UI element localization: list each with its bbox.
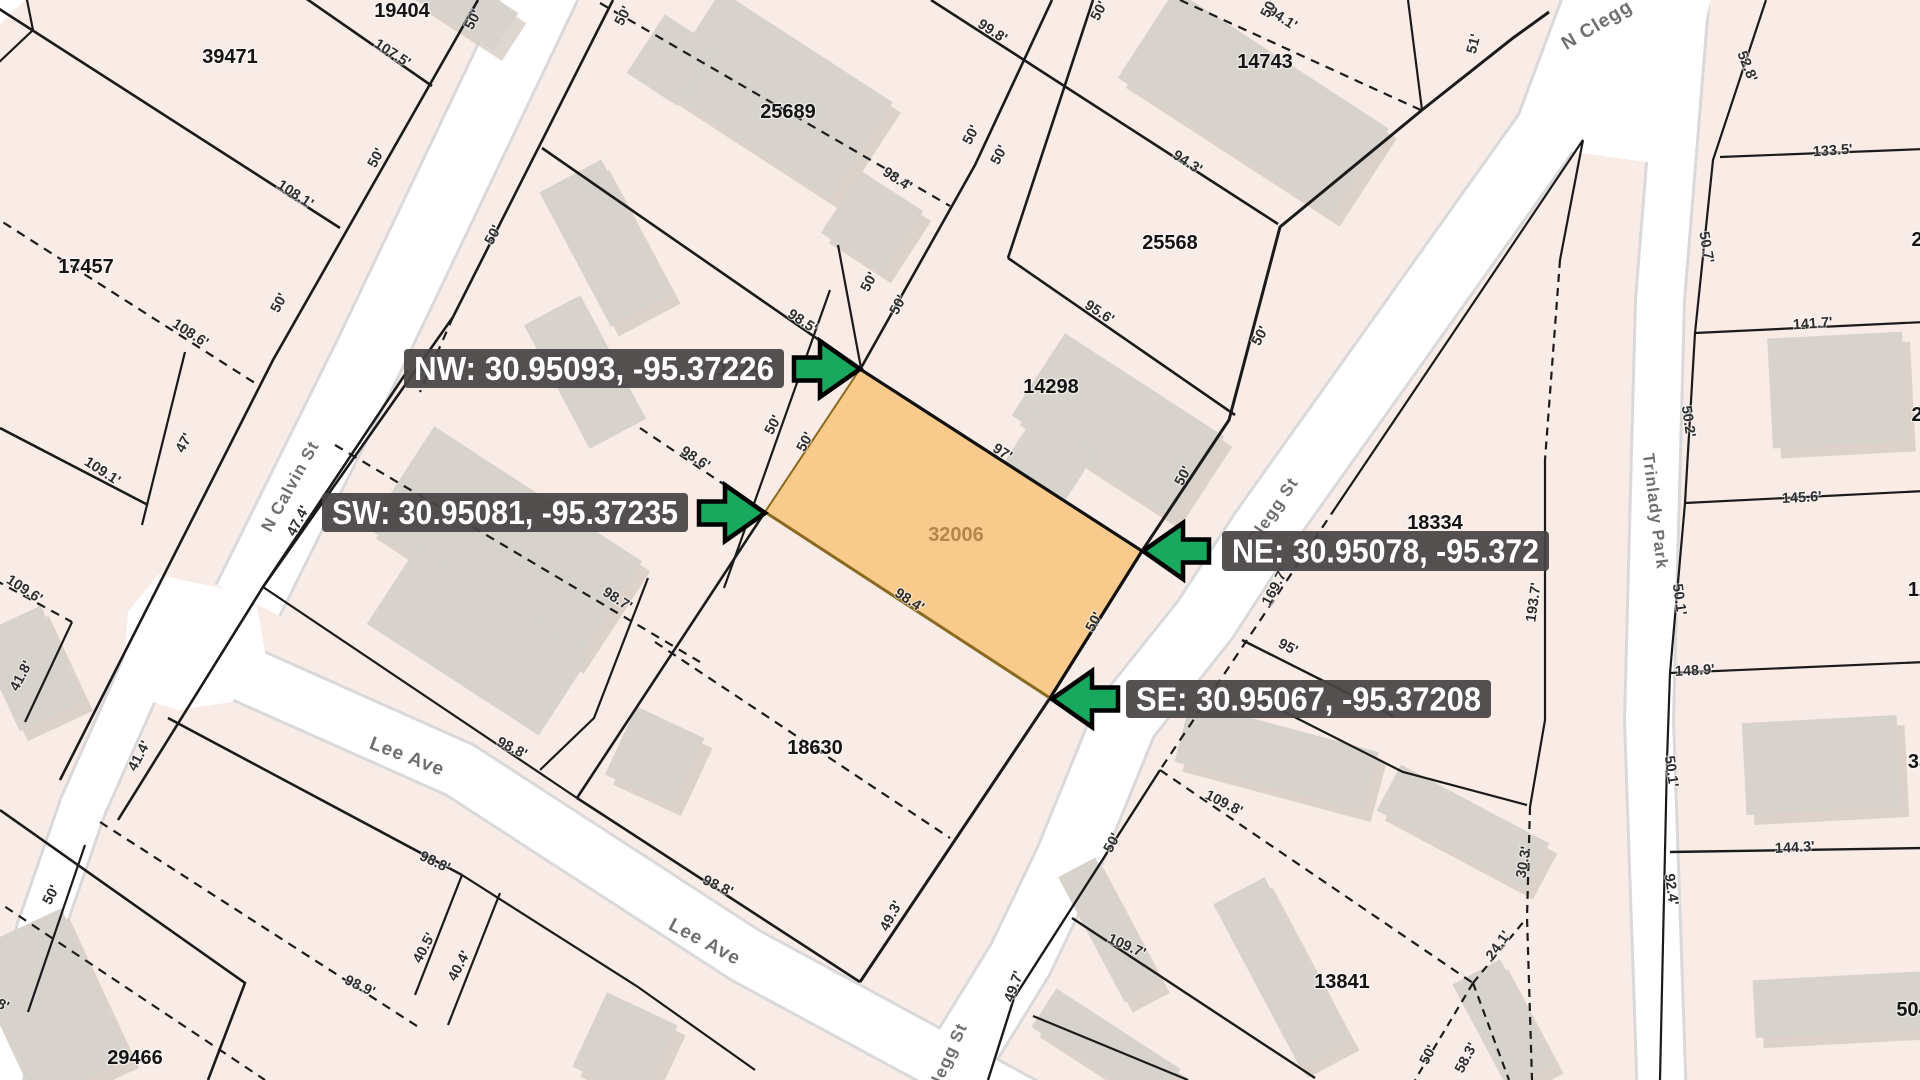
svg-text:2: 2 (1911, 404, 1920, 426)
svg-text:145.6': 145.6' (1782, 489, 1823, 507)
svg-text:33: 33 (1908, 751, 1920, 773)
svg-text:141.7': 141.7' (1792, 315, 1833, 334)
svg-text:504: 504 (1896, 999, 1920, 1021)
svg-text:SE: 30.95067, -95.37208: SE: 30.95067, -95.37208 (1136, 681, 1481, 718)
svg-text:148.9': 148.9' (1675, 662, 1716, 680)
svg-text:144.3': 144.3' (1775, 839, 1816, 857)
svg-text:17457: 17457 (58, 256, 114, 278)
svg-text:32006: 32006 (928, 524, 984, 546)
svg-text:SW: 30.95081, -95.37235: SW: 30.95081, -95.37235 (332, 494, 678, 531)
svg-text:18334: 18334 (1407, 512, 1463, 534)
svg-text:18630: 18630 (787, 737, 843, 759)
svg-text:25689: 25689 (760, 101, 816, 123)
svg-text:133.5': 133.5' (1812, 142, 1853, 161)
svg-text:19404: 19404 (374, 0, 430, 22)
svg-text:25568: 25568 (1142, 232, 1198, 254)
svg-text:NW: 30.95093, -95.37226: NW: 30.95093, -95.37226 (414, 350, 774, 387)
svg-text:14298: 14298 (1023, 376, 1079, 398)
svg-text:39471: 39471 (202, 46, 258, 68)
svg-text:14743: 14743 (1237, 51, 1293, 73)
svg-text:12: 12 (1908, 579, 1920, 601)
svg-text:29466: 29466 (107, 1047, 163, 1069)
svg-text:2: 2 (1911, 229, 1920, 251)
svg-text:NE: 30.95078, -95.372: NE: 30.95078, -95.372 (1232, 533, 1539, 570)
svg-text:13841: 13841 (1314, 971, 1370, 993)
